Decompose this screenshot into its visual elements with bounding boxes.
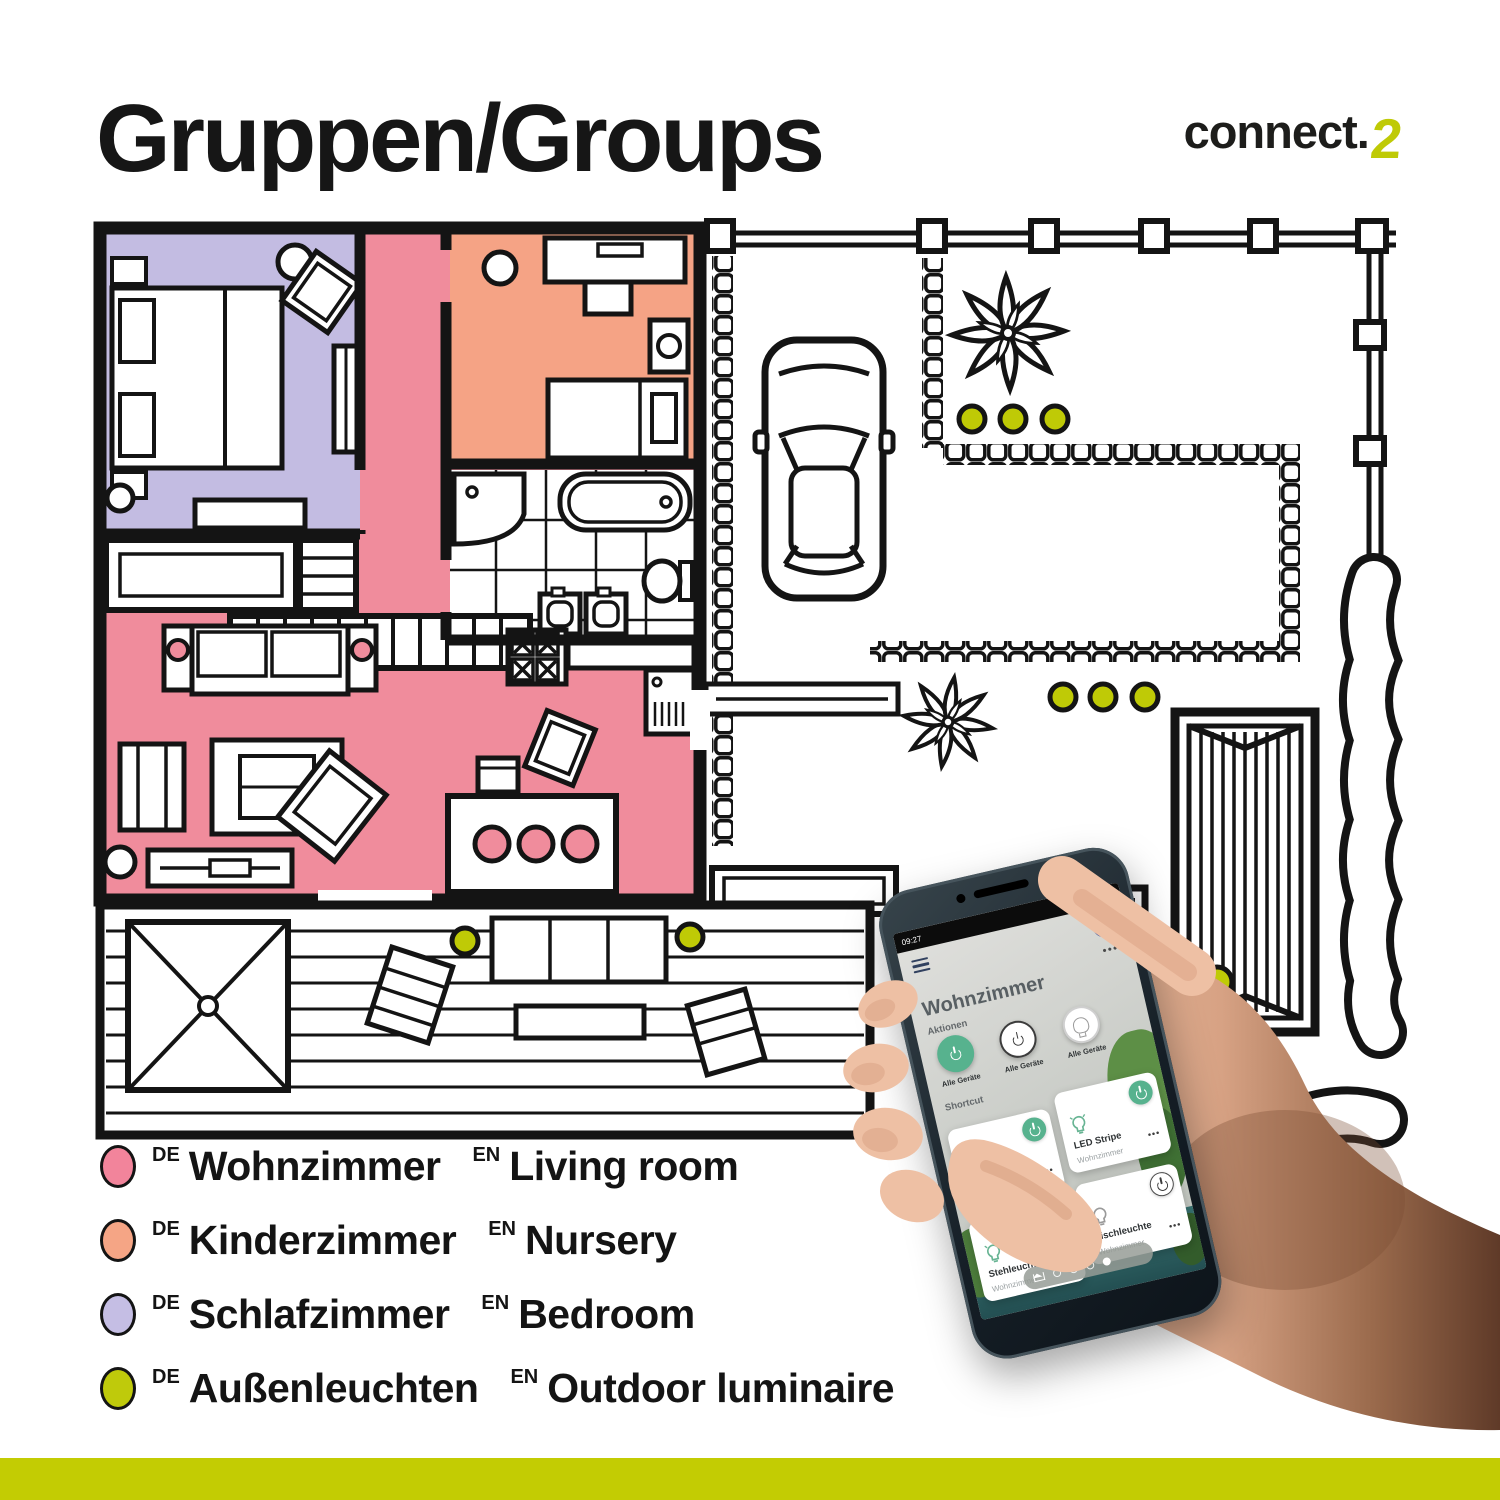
- power-button[interactable]: [1020, 1115, 1049, 1144]
- status-icons: 95%: [1066, 889, 1114, 908]
- legend-de-name: Außenleuchten: [189, 1365, 479, 1412]
- action-all-devices[interactable]: Alle Geräte: [1049, 1000, 1115, 1061]
- hand-back: [0, 0, 1500, 1500]
- battery-icon: [1101, 890, 1114, 900]
- legend-en-name: Living room: [509, 1143, 738, 1190]
- action-all-devices[interactable]: Alle Geräte: [987, 1015, 1053, 1076]
- pager-dot: [1085, 1261, 1095, 1271]
- legend-dot: [100, 1367, 136, 1410]
- power-button[interactable]: [933, 1032, 977, 1076]
- power-button[interactable]: [1126, 1078, 1155, 1107]
- legend-en-name: Nursery: [525, 1217, 676, 1264]
- signal-icon: [1067, 900, 1073, 907]
- en-tag: EN: [488, 1218, 516, 1241]
- legend-dot: [100, 1219, 136, 1262]
- pager-dot: [1069, 1264, 1079, 1274]
- lamp-button[interactable]: [1059, 1003, 1103, 1047]
- pager-dot: [1052, 1268, 1062, 1278]
- legend-item-wohnzimmer: DE Wohnzimmer EN Living room: [100, 1142, 738, 1190]
- legend-en-name: Bedroom: [518, 1291, 694, 1338]
- logo-accent: 2: [1369, 119, 1404, 159]
- en-tag: EN: [481, 1292, 509, 1315]
- de-tag: DE: [152, 1292, 180, 1315]
- de-tag: DE: [152, 1144, 180, 1167]
- legend-en-name: Outdoor luminaire: [547, 1365, 894, 1412]
- more-button[interactable]: •••: [1102, 942, 1120, 957]
- de-tag: DE: [152, 1218, 180, 1241]
- card-more[interactable]: •••: [1168, 1219, 1182, 1232]
- legend-item-aussenleuchten: DE Außenleuchten EN Outdoor luminaire: [100, 1364, 894, 1412]
- legend-de-name: Wohnzimmer: [189, 1143, 441, 1190]
- legend-item-schlafzimmer: DE Schlafzimmer EN Bedroom: [100, 1290, 695, 1338]
- brand-logo: connect. 2: [1184, 104, 1402, 159]
- status-time: 09:27: [901, 934, 923, 947]
- power-button[interactable]: [1147, 1170, 1176, 1199]
- action-all-devices[interactable]: Alle Geräte: [924, 1029, 990, 1090]
- home-icon[interactable]: [1033, 1272, 1046, 1282]
- status-battery: 95%: [1082, 893, 1100, 905]
- status-bar: 09:27 95%: [893, 882, 1123, 953]
- en-tag: EN: [472, 1144, 500, 1167]
- page-title: Gruppen/Groups: [96, 84, 822, 194]
- legend-dot: [100, 1293, 136, 1336]
- wifi-icon: [1075, 899, 1081, 904]
- menu-icon[interactable]: [911, 957, 931, 977]
- de-tag: DE: [152, 1366, 180, 1389]
- brand-bar: [0, 1458, 1500, 1500]
- en-tag: EN: [510, 1366, 538, 1389]
- legend-item-kinderzimmer: DE Kinderzimmer EN Nursery: [100, 1216, 677, 1264]
- power-button[interactable]: [1041, 1207, 1070, 1236]
- legend-dot: [100, 1145, 136, 1188]
- legend-de-name: Schlafzimmer: [189, 1291, 450, 1338]
- page: 09:27 95% + ••• Wohnzimmer Aktionen Alle…: [0, 0, 1500, 1500]
- app-title: Wohnzimmer: [920, 972, 1047, 1023]
- card-more[interactable]: •••: [1040, 1164, 1054, 1177]
- phone-camera: [955, 893, 966, 904]
- pager-dot-active: [1102, 1257, 1112, 1267]
- legend-de-name: Kinderzimmer: [189, 1217, 456, 1264]
- power-button[interactable]: [996, 1017, 1040, 1061]
- add-button[interactable]: +: [1090, 910, 1120, 940]
- card-more[interactable]: •••: [1147, 1127, 1161, 1140]
- logo-text: connect.: [1184, 104, 1369, 159]
- phone-speaker: [973, 879, 1029, 899]
